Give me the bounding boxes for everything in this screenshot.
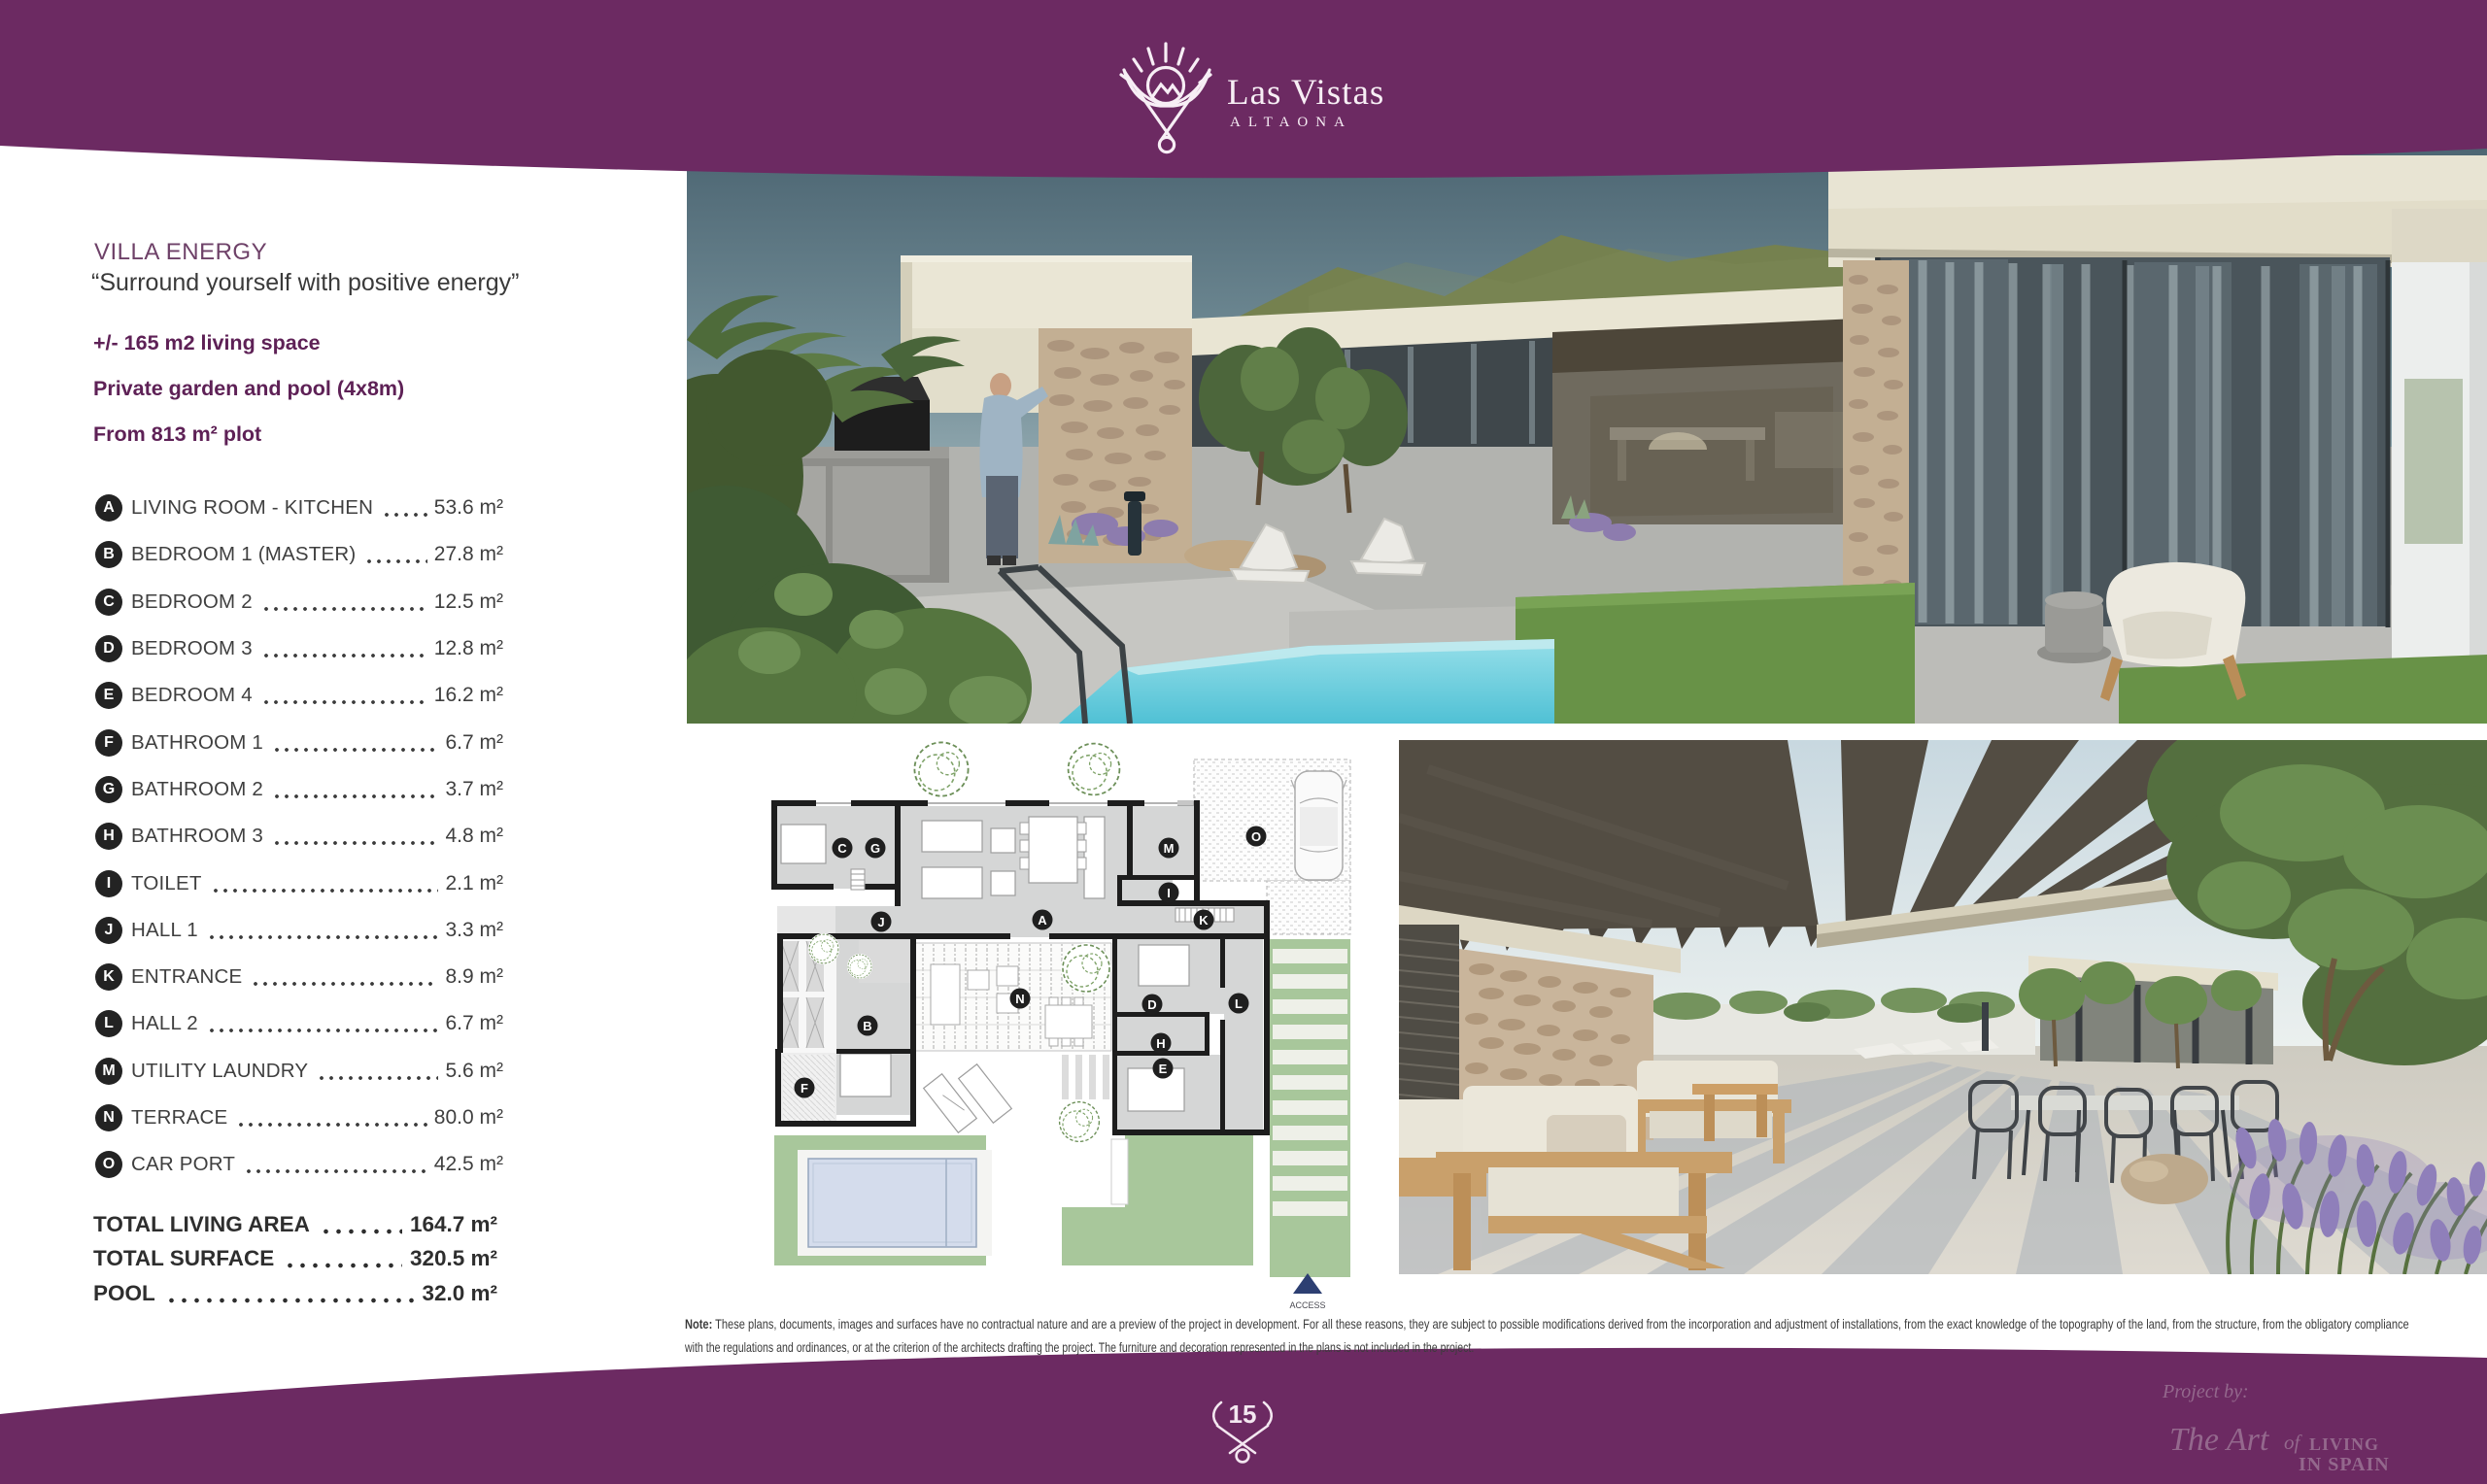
svg-text:J: J xyxy=(877,915,884,929)
svg-text:D: D xyxy=(1147,997,1156,1012)
svg-text:H: H xyxy=(1156,1036,1165,1051)
svg-text:ALTAONA: ALTAONA xyxy=(1230,115,1352,130)
svg-text:G: G xyxy=(870,841,880,856)
svg-text:IN SPAIN: IN SPAIN xyxy=(2299,1454,2390,1475)
svg-text:Las Vistas: Las Vistas xyxy=(1227,73,1384,113)
svg-text:O: O xyxy=(1251,829,1261,844)
svg-text:15: 15 xyxy=(1229,1400,1257,1429)
svg-text:C: C xyxy=(837,841,847,856)
svg-text:LIVING: LIVING xyxy=(2309,1434,2379,1454)
svg-text:M: M xyxy=(1164,841,1175,856)
svg-text:F: F xyxy=(801,1081,808,1096)
svg-text:Project by:: Project by: xyxy=(2162,1381,2249,1402)
svg-text:of: of xyxy=(2284,1431,2303,1454)
svg-text:A: A xyxy=(1038,913,1047,927)
svg-text:B: B xyxy=(863,1019,871,1033)
svg-text:N: N xyxy=(1015,992,1024,1006)
svg-text:The Art: The Art xyxy=(2169,1422,2270,1458)
svg-text:K: K xyxy=(1199,913,1209,927)
svg-text:I: I xyxy=(1167,886,1171,900)
svg-text:E: E xyxy=(1159,1062,1168,1076)
svg-text:ACCESS: ACCESS xyxy=(1289,1300,1325,1310)
svg-text:L: L xyxy=(1235,996,1243,1011)
